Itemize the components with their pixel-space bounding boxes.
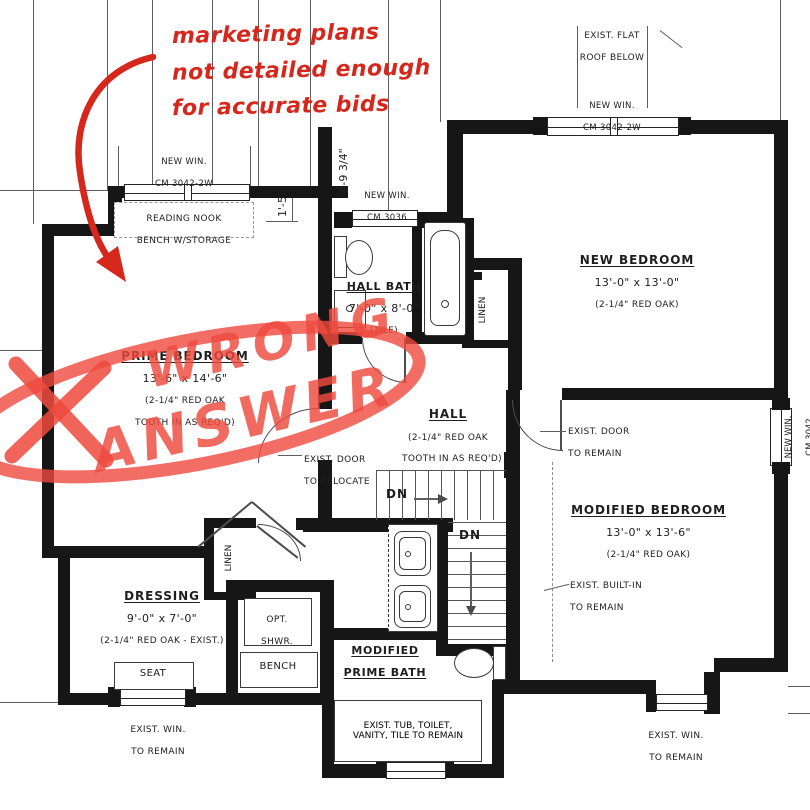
flat-roof-callout: EXIST. FLAT: [584, 31, 640, 41]
window-jamb: [533, 117, 547, 135]
door-remain-callout2: TO REMAIN: [568, 449, 622, 459]
projection-line: [0, 350, 42, 351]
hall-bath-dims: 7'-0" x 8'-0": [349, 302, 419, 315]
win-remain-left-callout: EXIST. WIN.: [130, 725, 185, 735]
door-leaf: [404, 338, 406, 382]
window-jamb: [376, 760, 386, 778]
tub-remain-label: EXIST. TUB, TOILET,: [335, 721, 481, 731]
wall: [58, 546, 204, 558]
door-relocate-callout: EXIST. DOOR: [304, 455, 366, 465]
wall: [296, 518, 320, 530]
door-arc: [362, 338, 407, 383]
dim-extension-line: [266, 221, 298, 222]
wall: [42, 224, 54, 556]
door-relocate-callout2: TO RELOCATE: [304, 477, 370, 487]
hall-floor2: TOOTH IN AS REQ'D): [402, 454, 502, 464]
door-leaf: [560, 400, 562, 450]
stairs-arrow-line: [414, 498, 438, 500]
toilet-fixture: [454, 648, 494, 678]
modified-bedroom-name: MODIFIED BEDROOM: [571, 503, 726, 517]
red-note-line2: not detailed enough: [172, 55, 431, 85]
prime-bedroom-name: PRIME BEDROOM: [121, 349, 248, 363]
built-in-callout: EXIST. BUILT-IN: [570, 581, 642, 591]
sink-basin: [399, 591, 426, 622]
win-modified-callout: NEW WIN. CM 3042: [776, 416, 810, 459]
opt-shower-label: OPT.: [266, 615, 287, 625]
sink-drain: [405, 604, 411, 610]
hall-floor: (2-1/4" RED OAK: [408, 433, 488, 443]
window-symbol: [120, 689, 186, 706]
wall: [58, 546, 70, 705]
wall: [194, 693, 326, 705]
hall-bath-floor: (TILE): [370, 326, 398, 336]
prime-bedroom-floor2: TOOTH IN AS REQ'D): [135, 418, 235, 428]
wall: [506, 390, 520, 680]
opt-shower-label2: SHWR.: [261, 637, 293, 647]
hall-bath-name: HALL BATH: [347, 280, 422, 293]
flat-roof-callout2: ROOF BELOW: [580, 53, 645, 63]
flat-roof-leader: [660, 30, 683, 48]
window-symbol: [386, 762, 446, 779]
win-modified-line1: NEW WIN.: [784, 416, 794, 459]
linen-dressing-label: LINEN: [224, 545, 236, 572]
win-bath-callout2: CM 3036: [367, 213, 407, 223]
wall: [492, 680, 656, 694]
sink-basin: [399, 537, 426, 570]
tub-remain-label2: VANITY, TILE TO REMAIN: [335, 731, 481, 741]
stairs-arrow-icon: [466, 606, 476, 616]
toilet-fixture: [345, 240, 373, 275]
built-in-leader: [544, 584, 570, 591]
wall: [508, 258, 522, 390]
prime-bath-name2: PRIME BATH: [344, 666, 427, 679]
door-relocate-leader: [278, 455, 302, 456]
stairs-dn-lower: DN: [452, 527, 488, 543]
projection-line: [788, 686, 810, 687]
toilet-tank: [493, 646, 506, 680]
new-bedroom-dims: 13'-0" x 13'-0": [595, 276, 680, 289]
win-nook-callout2: CM 3042-2W: [155, 179, 213, 189]
stairs-arrow-icon: [438, 494, 448, 504]
window-jamb: [772, 462, 790, 474]
wall: [492, 693, 504, 778]
win-bedroom-callout2: CM 3042-2W: [583, 123, 641, 133]
window-jamb: [677, 117, 691, 135]
win-modified-line2: CM 3042: [805, 418, 810, 456]
sink-drain: [405, 551, 411, 557]
win-remain-right-callout: EXIST. WIN.: [648, 731, 703, 741]
built-in-callout2: TO REMAIN: [570, 603, 624, 613]
hall-name: HALL: [429, 407, 467, 421]
new-bedroom-floor: (2-1/4" RED OAK): [595, 300, 679, 310]
bench-label: BENCH: [242, 660, 314, 674]
red-arrowhead-icon: [96, 246, 126, 282]
projection-line: [780, 0, 781, 120]
dim-bath-offset: 4'-9 3/4": [337, 148, 351, 195]
win-remain-right-callout2: TO REMAIN: [649, 753, 703, 763]
tub-drain: [441, 300, 449, 308]
tub-remain-outline: EXIST. TUB, TOILET, VANITY, TILE TO REMA…: [334, 700, 482, 762]
dressing-name: DRESSING: [124, 589, 200, 603]
new-bedroom-name: NEW BEDROOM: [580, 253, 694, 267]
wall: [462, 340, 520, 348]
red-x-stroke: [16, 364, 106, 460]
projection-line: [440, 0, 441, 122]
win-bath-callout: NEW WIN.: [364, 191, 410, 201]
door-remain-leader: [540, 431, 566, 432]
red-note-line1: marketing plans: [172, 20, 380, 49]
dressing-floor: (2-1/4" RED OAK - EXIST.): [100, 636, 223, 646]
window-jamb: [646, 692, 656, 712]
dim-nook-offset: 1'-5": [276, 191, 290, 217]
projection-line: [788, 713, 810, 714]
built-in-outline: [552, 462, 553, 662]
win-remain-left-callout2: TO REMAIN: [131, 747, 185, 757]
wall: [562, 388, 774, 400]
door-remain-callout: EXIST. DOOR: [568, 427, 630, 437]
win-bedroom-callout: NEW WIN.: [589, 101, 635, 111]
window-symbol: [656, 694, 708, 711]
prime-bath-name: MODIFIED: [351, 644, 418, 657]
reading-nook-label: READING NOOK: [146, 214, 221, 224]
prime-bedroom-dims: 13'-6" x 14'-6": [143, 372, 228, 385]
window-jamb: [772, 398, 790, 410]
win-nook-callout: NEW WIN.: [161, 157, 207, 167]
reading-nook-label2: BENCH W/STORAGE: [137, 236, 232, 246]
dressing-dims: 9'-0" x 7'-0": [127, 612, 197, 625]
modified-bedroom-floor: (2-1/4" RED OAK): [607, 550, 691, 560]
window-jamb: [334, 212, 352, 228]
projection-line: [107, 0, 108, 190]
prime-bedroom-floor: (2-1/4" RED OAK: [145, 396, 225, 406]
linen-hall-bath-label: LINEN: [478, 297, 490, 324]
window-label-bracket: [250, 146, 251, 186]
wall: [42, 224, 122, 236]
projection-line: [0, 190, 108, 191]
red-x-stroke: [12, 368, 104, 456]
tub-basin: [430, 230, 460, 326]
red-note-line3: for accurate bids: [172, 92, 390, 122]
modified-bedroom-dims: 13'-0" x 13'-6": [606, 526, 691, 539]
floor-plan: READING NOOK BENCH W/STORAGE DN DN OPT. …: [0, 0, 810, 810]
stairs-arrow-line: [470, 552, 472, 608]
stairs-dn-line: [486, 535, 506, 536]
wall: [318, 127, 332, 409]
seat-label: SEAT: [116, 667, 190, 681]
wall: [58, 693, 114, 705]
window-jamb: [108, 687, 120, 707]
